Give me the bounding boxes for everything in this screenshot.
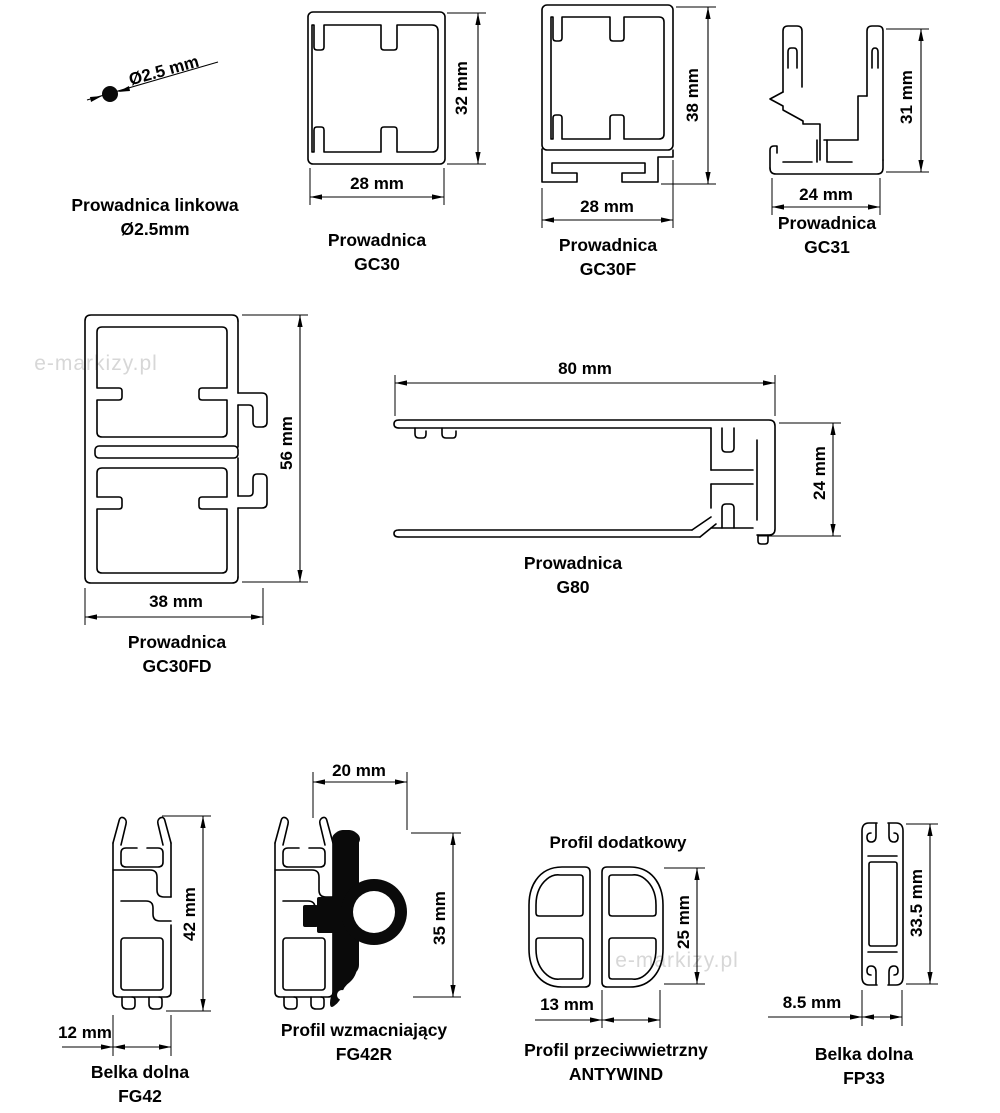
g80-profile-drawing — [394, 375, 841, 544]
caption-line: Prowadnica — [328, 228, 426, 252]
profiles-diagram: e-markizy.pl e-markizy.pl — [0, 0, 1000, 1113]
fg42r-height-dim-label: 35 mm — [430, 891, 450, 945]
caption-line: Belka dolna — [815, 1042, 913, 1066]
caption-line: Ø2.5mm — [71, 217, 238, 241]
fp33-height-dim-label: 33.5 mm — [907, 869, 927, 937]
gc30f-caption: Prowadnica GC30F — [559, 233, 657, 281]
cable-dot — [102, 86, 118, 102]
fg42-caption: Belka dolna FG42 — [91, 1060, 189, 1108]
antywind-caption: Profil przeciwwietrzny ANTYWIND — [524, 1038, 708, 1086]
gc30f-width-dim-label: 28 mm — [580, 197, 634, 217]
caption-line: GC30 — [328, 252, 426, 276]
caption-line: G80 — [524, 575, 622, 599]
gc30fd-profile-drawing — [85, 315, 308, 625]
caption-line: Prowadnica — [128, 630, 226, 654]
caption-line: Profil przeciwwietrzny — [524, 1038, 708, 1062]
antywind-width-dim-label: 13 mm — [540, 995, 594, 1015]
caption-line: Belka dolna — [91, 1060, 189, 1084]
antywind-height-dim-label: 25 mm — [674, 895, 694, 949]
gc30-height-dim-label: 32 mm — [452, 61, 472, 115]
caption-line: Prowadnica — [778, 211, 876, 235]
fg42r-width-dim-label: 20 mm — [332, 761, 386, 781]
fg42-width-dim-label: 12 mm — [58, 1023, 112, 1043]
gc31-width-dim-label: 24 mm — [799, 185, 853, 205]
diagram-canvas — [0, 0, 1000, 1113]
gc30f-height-dim-label: 38 mm — [683, 68, 703, 122]
gc30-width-dim-label: 28 mm — [350, 174, 404, 194]
caption-line: GC30FD — [128, 654, 226, 678]
g80-height-dim-label: 24 mm — [810, 446, 830, 500]
cable-guide-caption: Prowadnica linkowa Ø2.5mm — [71, 193, 238, 241]
fg42-profile-drawing — [113, 817, 171, 1009]
g80-width-dim-label: 80 mm — [558, 359, 612, 379]
fp33-caption: Belka dolna FP33 — [815, 1042, 913, 1090]
caption-line: GC31 — [778, 235, 876, 259]
caption-line: Prowadnica linkowa — [71, 193, 238, 217]
caption-line: Prowadnica — [524, 551, 622, 575]
caption-line: FP33 — [815, 1066, 913, 1090]
gc30fd-height-dim-label: 56 mm — [277, 416, 297, 470]
gc30fd-width-dim-label: 38 mm — [149, 592, 203, 612]
fg42-height-dim-label: 42 mm — [180, 887, 200, 941]
caption-line: Profil wzmacniający — [281, 1018, 447, 1042]
gc30fd-caption: Prowadnica GC30FD — [128, 630, 226, 678]
antywind-header-label: Profil dodatkowy — [550, 833, 687, 853]
caption-line: GC30F — [559, 257, 657, 281]
g80-caption: Prowadnica G80 — [524, 551, 622, 599]
fg42r-caption: Profil wzmacniający FG42R — [281, 1018, 447, 1066]
caption-line: Prowadnica — [559, 233, 657, 257]
fp33-width-dim-label: 8.5 mm — [783, 993, 842, 1013]
caption-line: FG42R — [281, 1042, 447, 1066]
caption-line: FG42 — [91, 1084, 189, 1108]
gc31-height-dim-label: 31 mm — [897, 70, 917, 124]
gc30-caption: Prowadnica GC30 — [328, 228, 426, 276]
gc31-caption: Prowadnica GC31 — [778, 211, 876, 259]
caption-line: ANTYWIND — [524, 1062, 708, 1086]
